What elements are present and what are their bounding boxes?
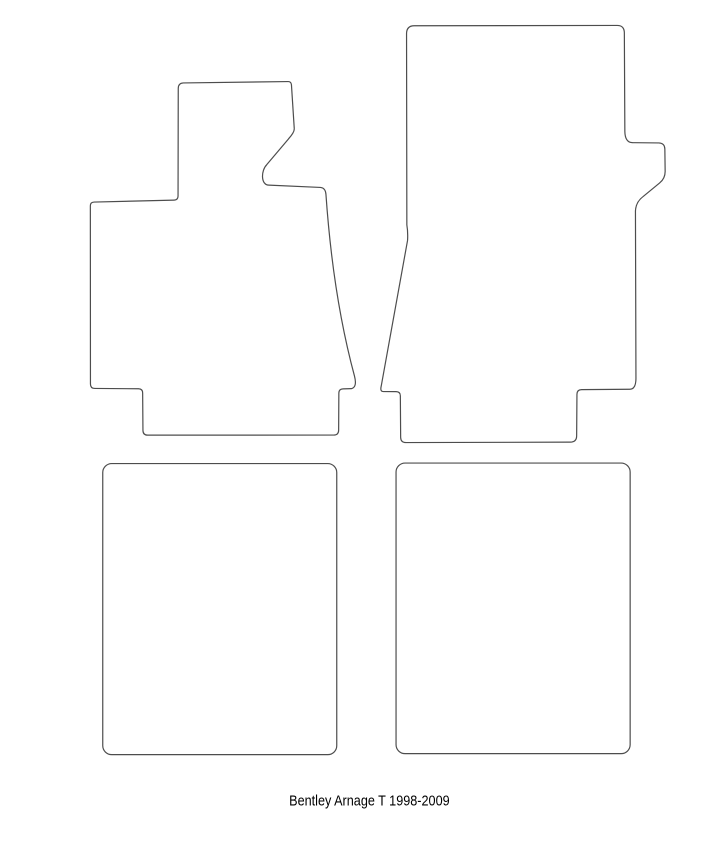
svg-text:Bentley Arnage T 1998-2009: Bentley Arnage T 1998-2009 <box>289 793 450 809</box>
